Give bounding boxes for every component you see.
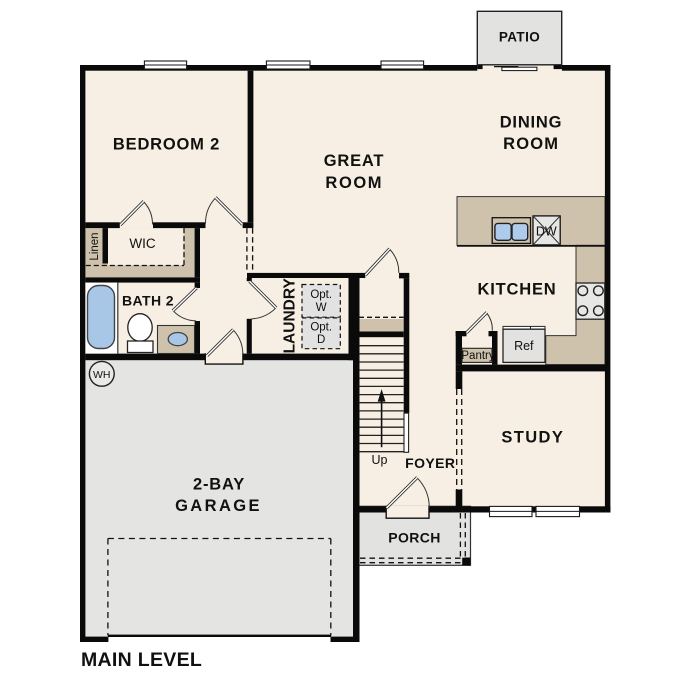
svg-text:BEDROOM 2: BEDROOM 2 bbox=[113, 135, 220, 153]
svg-text:DINING: DINING bbox=[500, 114, 563, 132]
svg-text:ROOM: ROOM bbox=[325, 174, 383, 192]
svg-text:FOYER: FOYER bbox=[405, 455, 455, 471]
svg-text:Opt.: Opt. bbox=[310, 321, 332, 333]
svg-text:WH: WH bbox=[93, 369, 111, 381]
svg-text:Opt.: Opt. bbox=[310, 289, 332, 301]
svg-text:Linen: Linen bbox=[89, 232, 101, 260]
svg-text:MAIN LEVEL: MAIN LEVEL bbox=[81, 649, 202, 671]
svg-text:GREAT: GREAT bbox=[324, 152, 385, 170]
svg-text:PATIO: PATIO bbox=[499, 29, 540, 44]
svg-text:LAUNDRY: LAUNDRY bbox=[281, 278, 298, 354]
svg-text:GARAGE: GARAGE bbox=[175, 497, 262, 515]
svg-text:Pantry: Pantry bbox=[461, 350, 494, 362]
svg-text:Up: Up bbox=[372, 453, 388, 467]
svg-text:WIC: WIC bbox=[129, 236, 155, 251]
svg-text:Ref: Ref bbox=[514, 339, 534, 353]
svg-text:STUDY: STUDY bbox=[501, 429, 564, 447]
svg-text:PORCH: PORCH bbox=[388, 530, 441, 546]
svg-text:W: W bbox=[316, 302, 327, 314]
svg-text:BATH 2: BATH 2 bbox=[122, 292, 174, 308]
svg-text:DW: DW bbox=[536, 224, 557, 238]
svg-text:2-BAY: 2-BAY bbox=[193, 476, 245, 494]
svg-text:ROOM: ROOM bbox=[503, 135, 559, 153]
svg-text:KITCHEN: KITCHEN bbox=[478, 281, 557, 299]
svg-text:D: D bbox=[317, 334, 325, 346]
